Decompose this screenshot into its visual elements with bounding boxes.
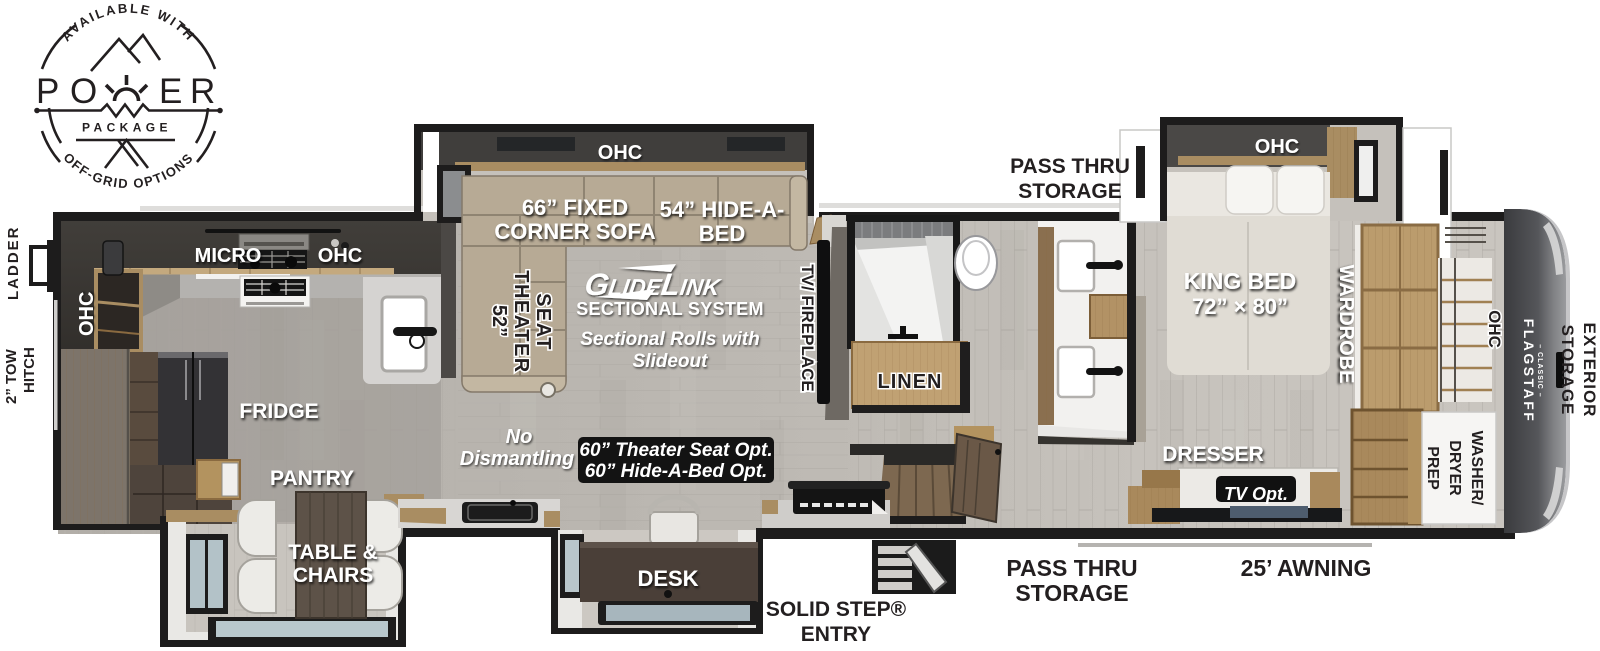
svg-text:WARDROBE: WARDROBE: [1335, 265, 1357, 384]
svg-text:SEAT: SEAT: [532, 293, 554, 351]
svg-text:THEATER: THEATER: [510, 270, 532, 373]
svg-text:54” HIDE-A-: 54” HIDE-A-: [660, 197, 785, 222]
svg-text:60” Theater Seat Opt.: 60” Theater Seat Opt.: [579, 440, 772, 461]
svg-text:CHAIRS: CHAIRS: [293, 564, 374, 587]
svg-text:– CLASSIC –: – CLASSIC –: [1536, 344, 1543, 397]
svg-text:EXTERIOR: EXTERIOR: [1580, 323, 1599, 418]
svg-text:60” Hide-A-Bed Opt.: 60” Hide-A-Bed Opt.: [585, 461, 768, 482]
svg-text:52”: 52”: [488, 305, 510, 337]
svg-text:SECTIONAL SYSTEM: SECTIONAL SYSTEM: [576, 299, 764, 319]
svg-text:FRIDGE: FRIDGE: [239, 400, 318, 423]
svg-text:PREP: PREP: [1424, 446, 1441, 490]
svg-text:Dismantling: Dismantling: [460, 448, 574, 470]
svg-text:TV Opt.: TV Opt.: [1224, 484, 1288, 504]
svg-text:SOLID STEP®: SOLID STEP®: [766, 598, 907, 621]
svg-text:FLAGSTAFF: FLAGSTAFF: [1521, 319, 1537, 424]
svg-text:2” TOW: 2” TOW: [3, 348, 20, 404]
svg-text:66” FIXED: 66” FIXED: [522, 195, 628, 220]
svg-text:O: O: [70, 72, 97, 111]
svg-text:LINEN: LINEN: [878, 371, 943, 393]
svg-text:LADDER: LADDER: [5, 226, 22, 301]
svg-text:PASS THRU: PASS THRU: [1010, 155, 1130, 178]
svg-text:P: P: [36, 72, 59, 111]
svg-text:BED: BED: [699, 221, 745, 246]
svg-text:OHC: OHC: [318, 245, 362, 267]
svg-text:HITCH: HITCH: [21, 347, 38, 393]
svg-text:R: R: [190, 72, 215, 111]
svg-text:MICRO: MICRO: [195, 245, 262, 267]
svg-text:TABLE &: TABLE &: [288, 541, 377, 564]
svg-text:STORAGE: STORAGE: [1558, 325, 1577, 416]
svg-text:TV/ FIREPLACE: TV/ FIREPLACE: [798, 264, 817, 392]
svg-text:DESK: DESK: [637, 566, 698, 591]
svg-text:No: No: [506, 426, 533, 448]
svg-text:Slideout: Slideout: [633, 351, 709, 372]
svg-text:72” × 80”: 72” × 80”: [1192, 294, 1288, 319]
svg-text:ENTRY: ENTRY: [801, 623, 871, 646]
svg-text:E: E: [159, 72, 182, 111]
svg-text:OHC: OHC: [76, 292, 98, 336]
svg-text:STORAGE: STORAGE: [1018, 180, 1121, 203]
svg-text:PASS THRU: PASS THRU: [1006, 555, 1137, 581]
svg-text:25’ AWNING: 25’ AWNING: [1241, 555, 1372, 581]
svg-text:OHC: OHC: [1255, 136, 1299, 158]
svg-text:KING BED: KING BED: [1184, 268, 1296, 294]
svg-text:OHC: OHC: [1485, 310, 1504, 348]
svg-text:STORAGE: STORAGE: [1015, 580, 1128, 606]
svg-text:PANTRY: PANTRY: [270, 467, 354, 490]
svg-text:WASHER/: WASHER/: [1468, 431, 1485, 506]
svg-text:CORNER SOFA: CORNER SOFA: [494, 219, 655, 244]
svg-text:DRESSER: DRESSER: [1162, 443, 1264, 466]
svg-text:OHC: OHC: [598, 142, 642, 164]
svg-text:Sectional Rolls with: Sectional Rolls with: [580, 329, 759, 350]
svg-text:DRYER: DRYER: [1446, 440, 1463, 496]
svg-text:PACKAGE: PACKAGE: [82, 121, 172, 135]
